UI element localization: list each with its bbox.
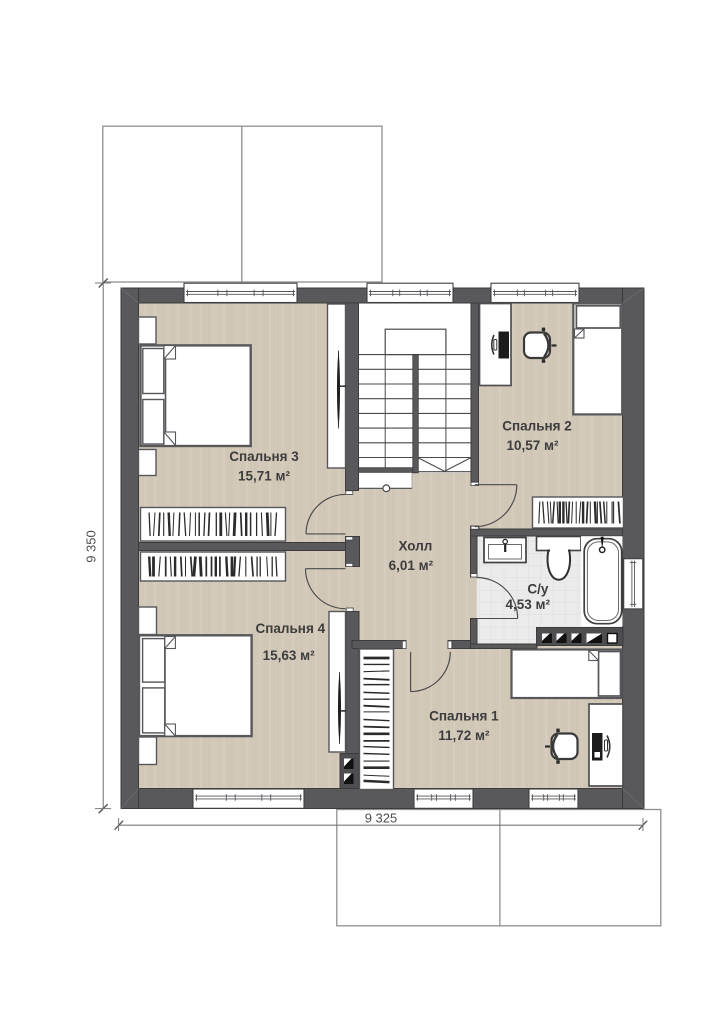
svg-text:9 350: 9 350 xyxy=(84,530,99,563)
svg-text:15,71 м²: 15,71 м² xyxy=(238,469,291,484)
svg-text:15,63 м²: 15,63 м² xyxy=(263,648,316,663)
svg-text:Спальня 3: Спальня 3 xyxy=(229,449,299,464)
svg-text:Спальня 1: Спальня 1 xyxy=(429,708,499,723)
svg-text:11,72 м²: 11,72 м² xyxy=(438,728,490,743)
svg-text:6,01 м²: 6,01 м² xyxy=(389,558,434,573)
svg-text:10,57 м²: 10,57 м² xyxy=(506,438,559,453)
svg-text:Холл: Холл xyxy=(398,539,432,554)
svg-text:4,53 м²: 4,53 м² xyxy=(505,597,550,612)
svg-text:Спальня 4: Спальня 4 xyxy=(256,621,326,636)
svg-text:9 325: 9 325 xyxy=(365,810,398,825)
svg-text:С/у: С/у xyxy=(527,581,549,596)
svg-text:Спальня 2: Спальня 2 xyxy=(502,419,572,434)
